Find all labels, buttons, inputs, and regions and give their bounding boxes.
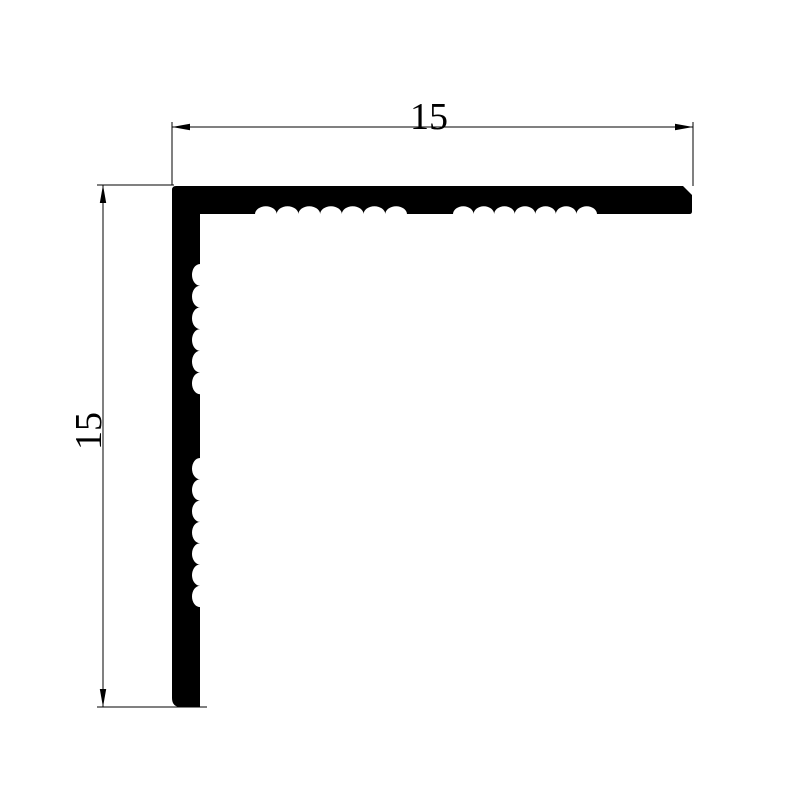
arrowhead-down-icon	[100, 689, 106, 707]
profile-drawing-svg: 15 15	[0, 0, 800, 800]
left-dimension-label: 15	[68, 412, 110, 450]
drawing-canvas: 15 15	[0, 0, 800, 800]
top-dimension: 15	[172, 96, 693, 186]
arrowhead-up-icon	[100, 185, 106, 203]
top-dimension-label: 15	[410, 96, 448, 138]
arrowhead-left-icon	[172, 124, 190, 130]
arrowhead-right-icon	[675, 124, 693, 130]
l-profile-shape	[172, 186, 692, 707]
